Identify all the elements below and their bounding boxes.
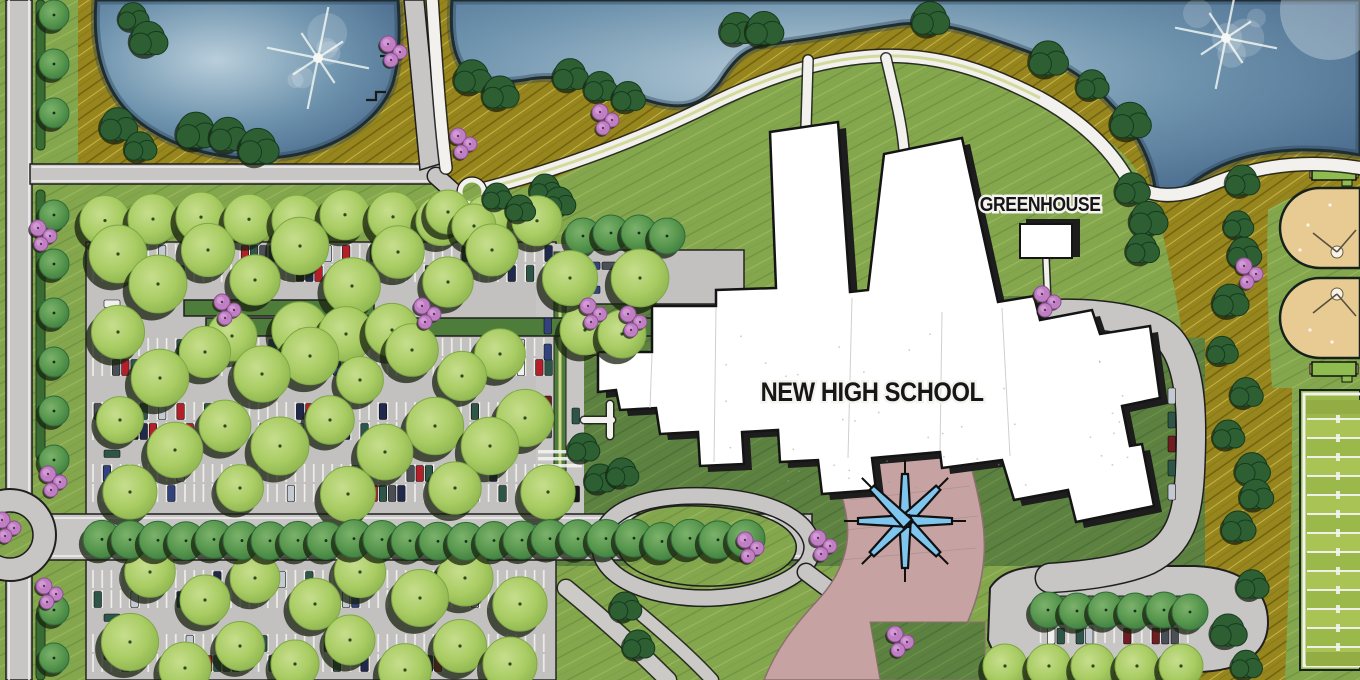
entry-canopy-star-icon	[844, 460, 966, 582]
school-label: NEW HIGH SCHOOL	[761, 378, 984, 408]
site-plan: NEW HIGH SCHOOL GREENHOUSE	[0, 0, 1360, 680]
greenhouse-building	[1020, 224, 1072, 258]
site-plan-canvas: NEW HIGH SCHOOL GREENHOUSE	[0, 0, 1360, 680]
greenhouse-label: GREENHOUSE	[980, 193, 1101, 215]
